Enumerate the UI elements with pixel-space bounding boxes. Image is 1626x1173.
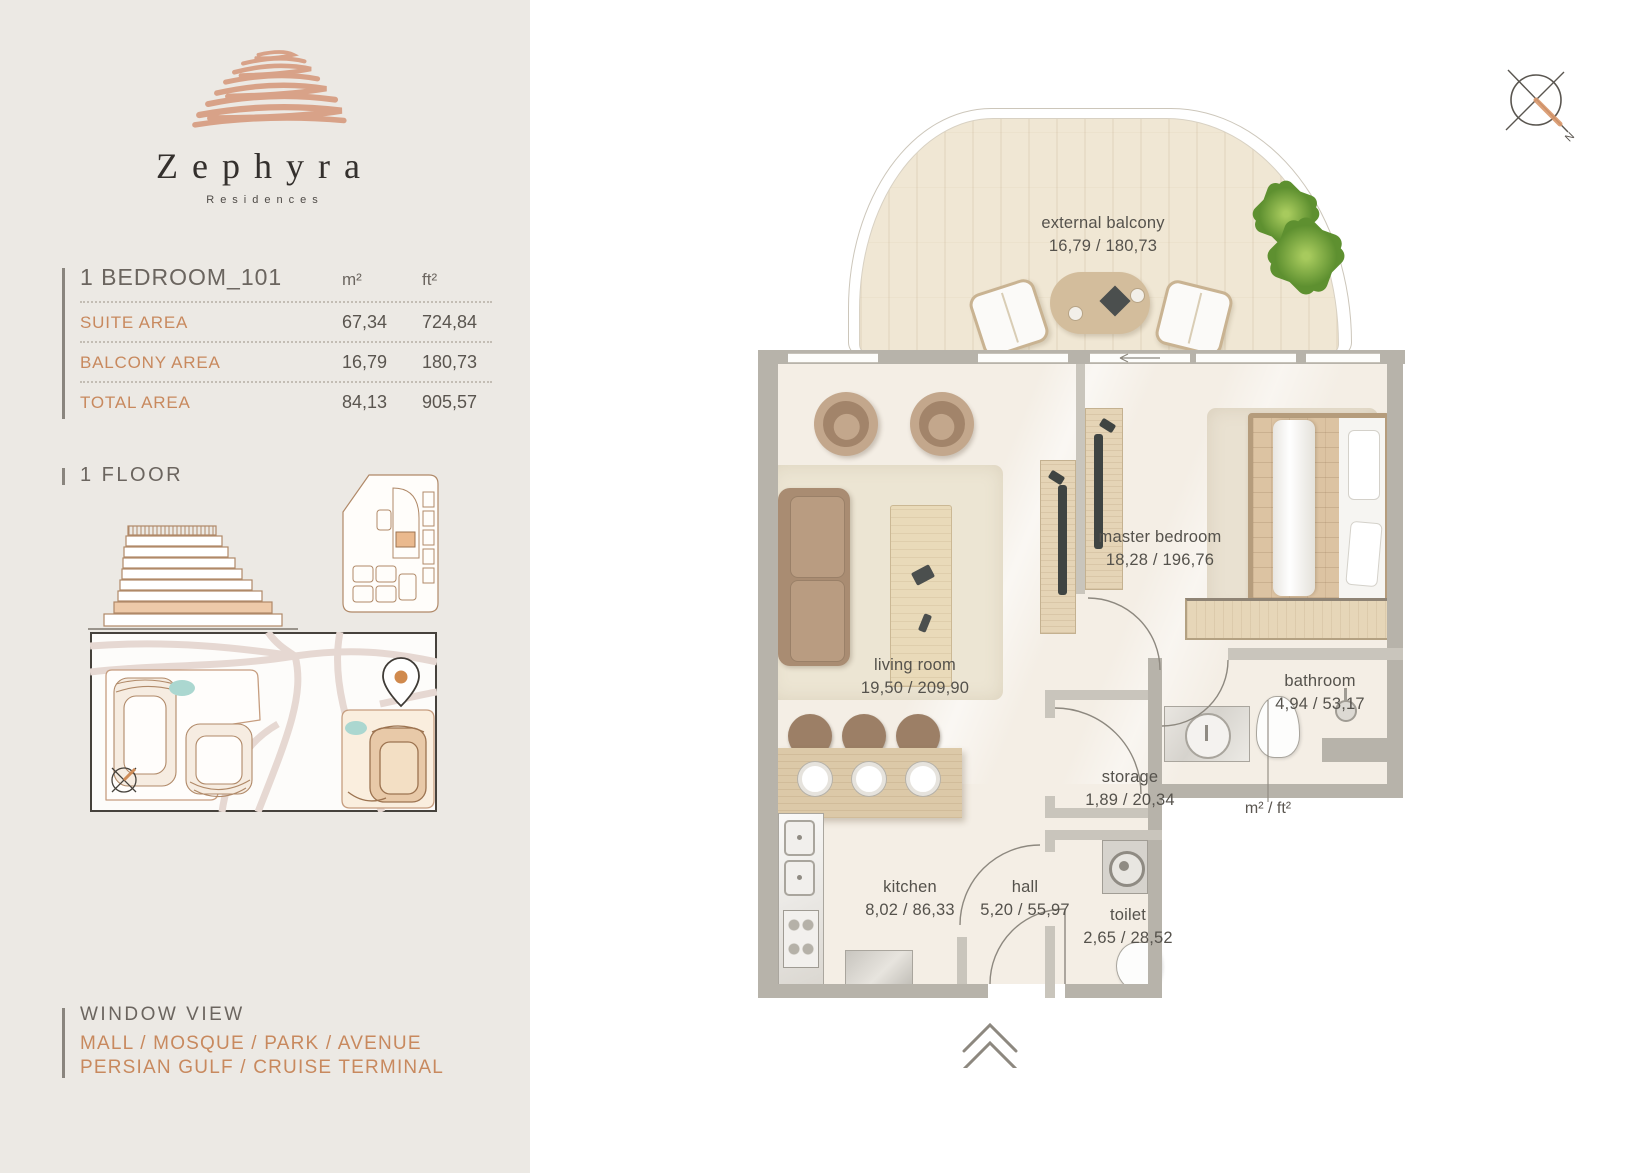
area-units-legend: m² / ft²	[1245, 800, 1291, 818]
window	[788, 353, 878, 363]
row-m2: 16,79	[342, 352, 422, 373]
shower-bench	[1322, 738, 1387, 762]
stove-icon	[783, 910, 819, 968]
kitchen-sink	[784, 820, 815, 856]
room-name: storage	[1102, 768, 1158, 786]
partition-living-bedroom	[1076, 364, 1085, 594]
cup	[1068, 306, 1083, 321]
wall-bedroom-bathroom	[1228, 648, 1403, 660]
highlighted-unit	[396, 532, 415, 547]
section-bar	[62, 468, 65, 485]
pillow	[1348, 430, 1380, 500]
window	[1306, 353, 1380, 363]
dresser	[1185, 598, 1390, 640]
room-label-kitchen: kitchen 8,02 / 86,33	[865, 876, 955, 922]
balcony-table	[1050, 272, 1150, 334]
table-decor	[1099, 285, 1130, 316]
sink-icon	[1185, 713, 1231, 759]
brand-tagline: Residences	[120, 194, 410, 206]
map-pond	[345, 721, 367, 735]
room-name: hall	[1012, 878, 1039, 896]
row-m2: 84,13	[342, 392, 422, 413]
room-name: toilet	[1110, 906, 1146, 924]
sofa	[778, 488, 850, 666]
table-decor	[911, 564, 935, 586]
room-area: 4,94 / 53,17	[1275, 695, 1365, 713]
floor-plan: external balcony 16,79 / 180,73 living r…	[728, 108, 1428, 1068]
room-label-living-room: living room 19,50 / 209,90	[861, 654, 969, 700]
wall-toilet-left	[1045, 926, 1055, 998]
place-setting	[906, 762, 940, 796]
wall-storage-top	[1045, 690, 1148, 700]
room-label-hall: hall 5,20 / 55,97	[980, 876, 1070, 922]
floor-plan-page: Zephyra Residences 1 BEDROOM_101 m² ft² …	[0, 0, 1626, 1173]
col-m2: m²	[342, 270, 422, 290]
row-ft2: 724,84	[422, 312, 492, 333]
window	[1090, 353, 1190, 363]
room-area: 2,65 / 28,52	[1083, 929, 1173, 947]
wall-right	[1387, 350, 1403, 798]
col-ft2: ft²	[422, 270, 492, 290]
room-name: master bedroom	[1099, 528, 1222, 546]
room-name: bathroom	[1284, 672, 1355, 690]
room-area: 5,20 / 55,97	[980, 901, 1070, 919]
kitchen-sink	[784, 860, 815, 896]
unit-title: 1 BEDROOM_101	[80, 264, 342, 291]
brand-name: Zephyra	[120, 145, 410, 187]
compass-north-label: N	[1563, 130, 1577, 144]
floor-label: 1 FLOOR	[80, 464, 183, 486]
logo-scribble-icon	[175, 46, 355, 138]
table-decor	[918, 613, 932, 633]
wall-bottom	[758, 984, 988, 998]
compass-icon: N	[1496, 58, 1582, 148]
console-decor	[1048, 470, 1065, 486]
place-setting	[852, 762, 886, 796]
wall-bathroom-bottom	[1148, 784, 1403, 798]
plant-icon	[1276, 226, 1336, 286]
cup	[1130, 288, 1145, 303]
room-label-external-balcony: external balcony 16,79 / 180,73	[1041, 212, 1164, 258]
room-area: 16,79 / 180,73	[1049, 237, 1157, 255]
section-bar	[62, 1008, 65, 1078]
table-row: BALCONY AREA 16,79 180,73	[80, 341, 492, 381]
sofa-cushion	[790, 580, 845, 662]
wall-toilet-top	[1045, 830, 1162, 840]
unit-area-table: 1 BEDROOM_101 m² ft² SUITE AREA 67,34 72…	[62, 264, 492, 421]
row-ft2: 180,73	[422, 352, 492, 373]
wall-toilet-left	[1045, 830, 1055, 852]
floor-header: 1 FLOOR	[62, 464, 183, 487]
window	[1196, 353, 1296, 363]
wall-stub	[957, 937, 967, 984]
table-row: SUITE AREA 67,34 724,84	[80, 301, 492, 341]
window	[978, 353, 1068, 363]
window-view-title: WINDOW VIEW	[80, 1004, 444, 1026]
sidebar: Zephyra Residences 1 BEDROOM_101 m² ft² …	[0, 0, 530, 1173]
window-view-section: WINDOW VIEW MALL / MOSQUE / PARK / AVENU…	[62, 1004, 444, 1080]
row-ft2: 905,57	[422, 392, 492, 413]
wall-storage-left	[1045, 796, 1055, 818]
room-area: 8,02 / 86,33	[865, 901, 955, 919]
window-view-line: MALL / MOSQUE / PARK / AVENUE	[80, 1032, 444, 1056]
tv-icon	[1058, 485, 1067, 595]
location-map	[90, 632, 437, 812]
bed	[1248, 413, 1390, 603]
entrance-chevron-icon	[964, 1025, 1016, 1068]
table-row: TOTAL AREA 84,13 905,57	[80, 381, 492, 421]
floor-key-plan	[333, 470, 445, 618]
building-elevation-diagram	[88, 518, 298, 632]
duvet	[1273, 420, 1315, 596]
pillow	[1345, 521, 1382, 588]
kitchen-counter	[778, 813, 824, 986]
bathroom-vanity	[1164, 706, 1250, 762]
room-area: 1,89 / 20,34	[1085, 791, 1175, 809]
sofa-cushion	[790, 496, 845, 578]
window-view-line: PERSIAN GULF / CRUISE TERMINAL	[80, 1056, 444, 1080]
washing-machine-icon	[1102, 840, 1148, 894]
tv-console-living	[1040, 460, 1076, 634]
room-label-toilet: toilet 2,65 / 28,52	[1083, 904, 1173, 950]
room-area: 19,50 / 209,90	[861, 679, 969, 697]
room-name: kitchen	[883, 878, 937, 896]
room-label-storage: storage 1,89 / 20,34	[1085, 766, 1175, 812]
unit-table-header: 1 BEDROOM_101 m² ft²	[80, 264, 492, 301]
row-label: TOTAL AREA	[80, 393, 342, 413]
row-label: SUITE AREA	[80, 313, 342, 333]
room-label-master-bedroom: master bedroom 18,28 / 196,76	[1099, 526, 1222, 572]
room-area: 18,28 / 196,76	[1106, 551, 1214, 569]
map-pond	[169, 680, 195, 696]
wall-left	[758, 350, 778, 998]
place-setting	[798, 762, 832, 796]
brand-logo: Zephyra Residences	[120, 46, 410, 206]
room-label-bathroom: bathroom 4,94 / 53,17	[1275, 670, 1365, 716]
room-name: living room	[874, 656, 956, 674]
section-bar	[62, 268, 65, 419]
row-label: BALCONY AREA	[80, 353, 342, 373]
room-name: external balcony	[1041, 214, 1164, 232]
wall-storage-left	[1045, 690, 1055, 718]
console-decor	[1099, 418, 1116, 434]
row-m2: 67,34	[342, 312, 422, 333]
